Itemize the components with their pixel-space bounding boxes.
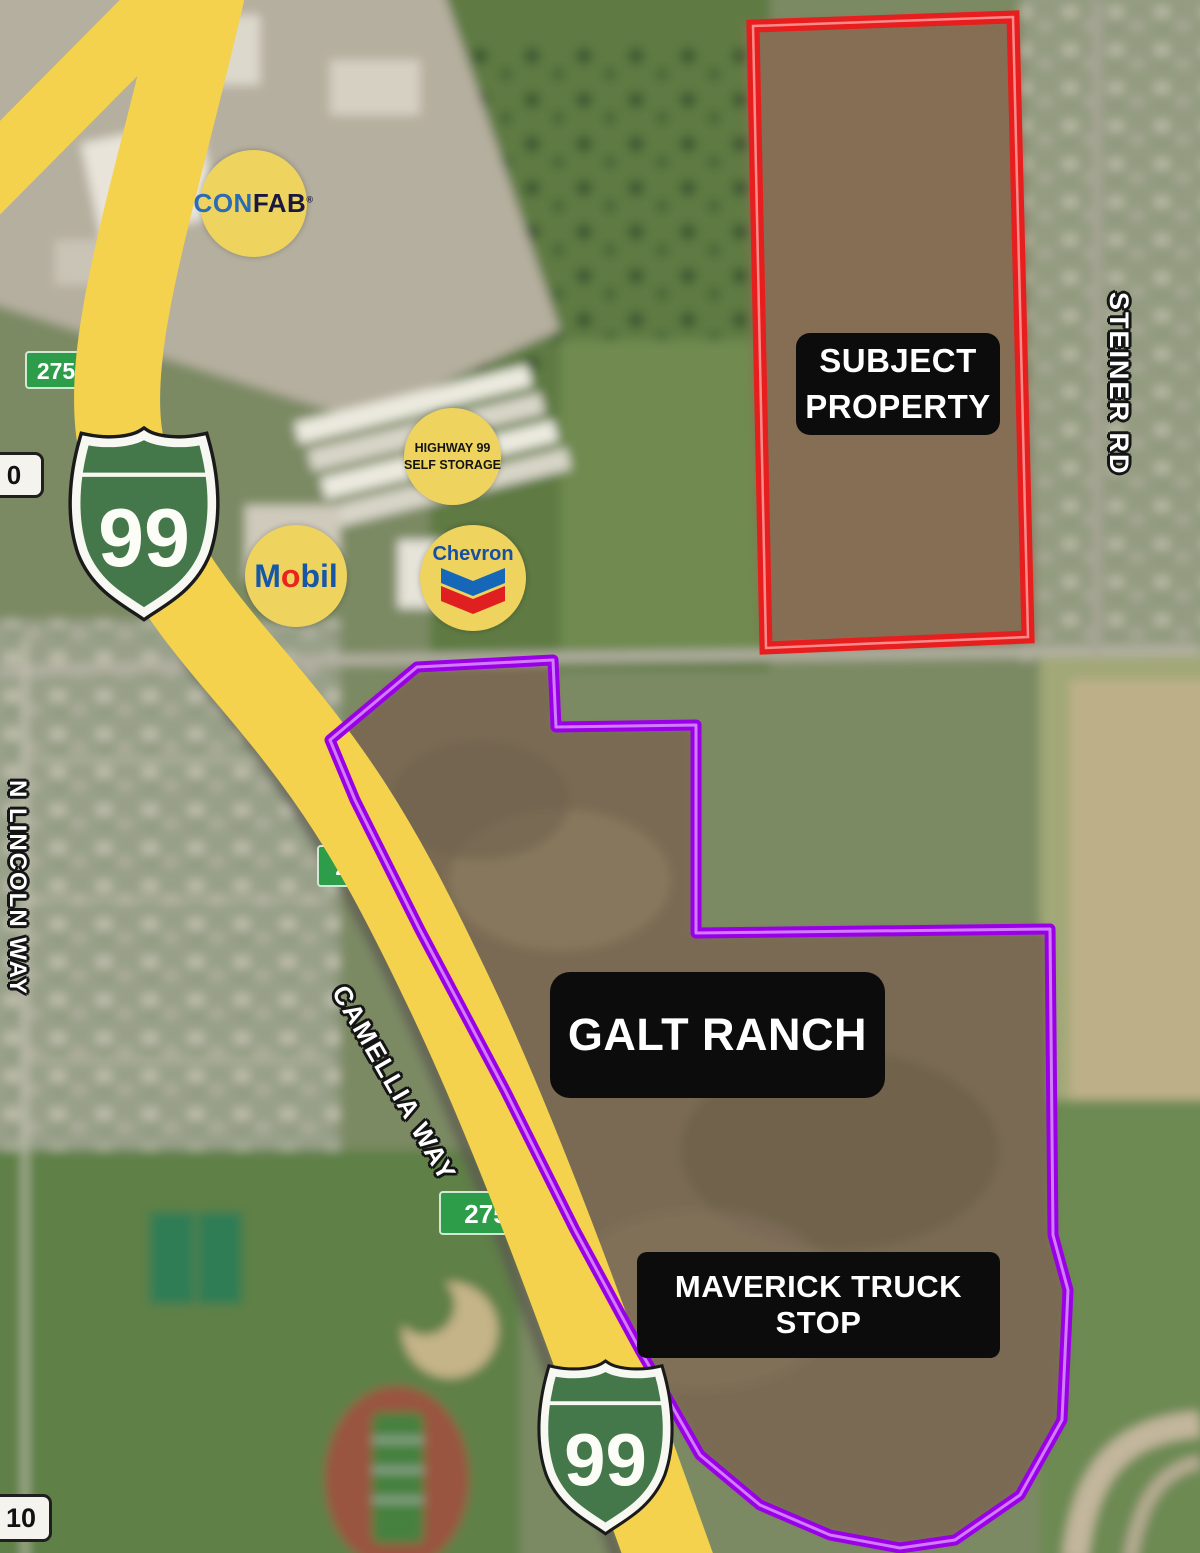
storage-line2: SELF STORAGE bbox=[404, 457, 501, 474]
subject-property-line1: SUBJECT bbox=[819, 338, 977, 384]
highway-99-shield-bottom: 99 bbox=[544, 1368, 666, 1528]
subject-property-label: SUBJECT PROPERTY bbox=[796, 333, 1000, 435]
svg-text:275: 275 bbox=[37, 358, 76, 384]
galt-ranch-text: GALT RANCH bbox=[568, 1009, 867, 1061]
chevron-logo-icon bbox=[441, 568, 505, 614]
route-marker-10: 10 bbox=[0, 1494, 52, 1542]
route-marker-0-text: 0 bbox=[7, 460, 21, 491]
svg-text:99: 99 bbox=[564, 1418, 647, 1501]
route-marker-0: 0 bbox=[0, 452, 44, 498]
satellite-base-map: 275 275A 275 99 bbox=[0, 0, 1200, 1553]
aerial-map: 275 275A 275 99 bbox=[0, 0, 1200, 1553]
mobil-m: M bbox=[254, 558, 281, 594]
galt-ranch-label: GALT RANCH bbox=[550, 972, 885, 1098]
chevron-badge: Chevron bbox=[420, 525, 526, 631]
mobil-badge: Mobil bbox=[245, 525, 347, 627]
storage-line1: HIGHWAY 99 bbox=[415, 440, 491, 457]
maverick-truck-stop-label: MAVERICK TRUCK STOP bbox=[637, 1252, 1000, 1358]
confab-text-dark: FAB bbox=[253, 188, 307, 218]
confab-badge: CONFAB® bbox=[200, 150, 307, 257]
subject-property-line2: PROPERTY bbox=[805, 384, 991, 430]
svg-text:99: 99 bbox=[98, 492, 190, 584]
steiner-rd-label: STEINER RD bbox=[1103, 292, 1134, 476]
n-lincoln-way-label: N LINCOLN WAY bbox=[3, 780, 31, 996]
highway-99-self-storage-badge: HIGHWAY 99 SELF STORAGE bbox=[404, 408, 501, 505]
confab-text-blue: CON bbox=[194, 188, 253, 218]
chevron-wordmark: Chevron bbox=[432, 543, 513, 566]
mobil-o: o bbox=[281, 558, 301, 594]
mobil-bil: bil bbox=[300, 558, 337, 594]
maverick-text: MAVERICK TRUCK STOP bbox=[637, 1269, 1000, 1341]
highway-99-shield-top: 99 bbox=[76, 435, 212, 612]
route-marker-10-text: 10 bbox=[6, 1503, 36, 1534]
confab-registered-mark: ® bbox=[306, 194, 313, 204]
